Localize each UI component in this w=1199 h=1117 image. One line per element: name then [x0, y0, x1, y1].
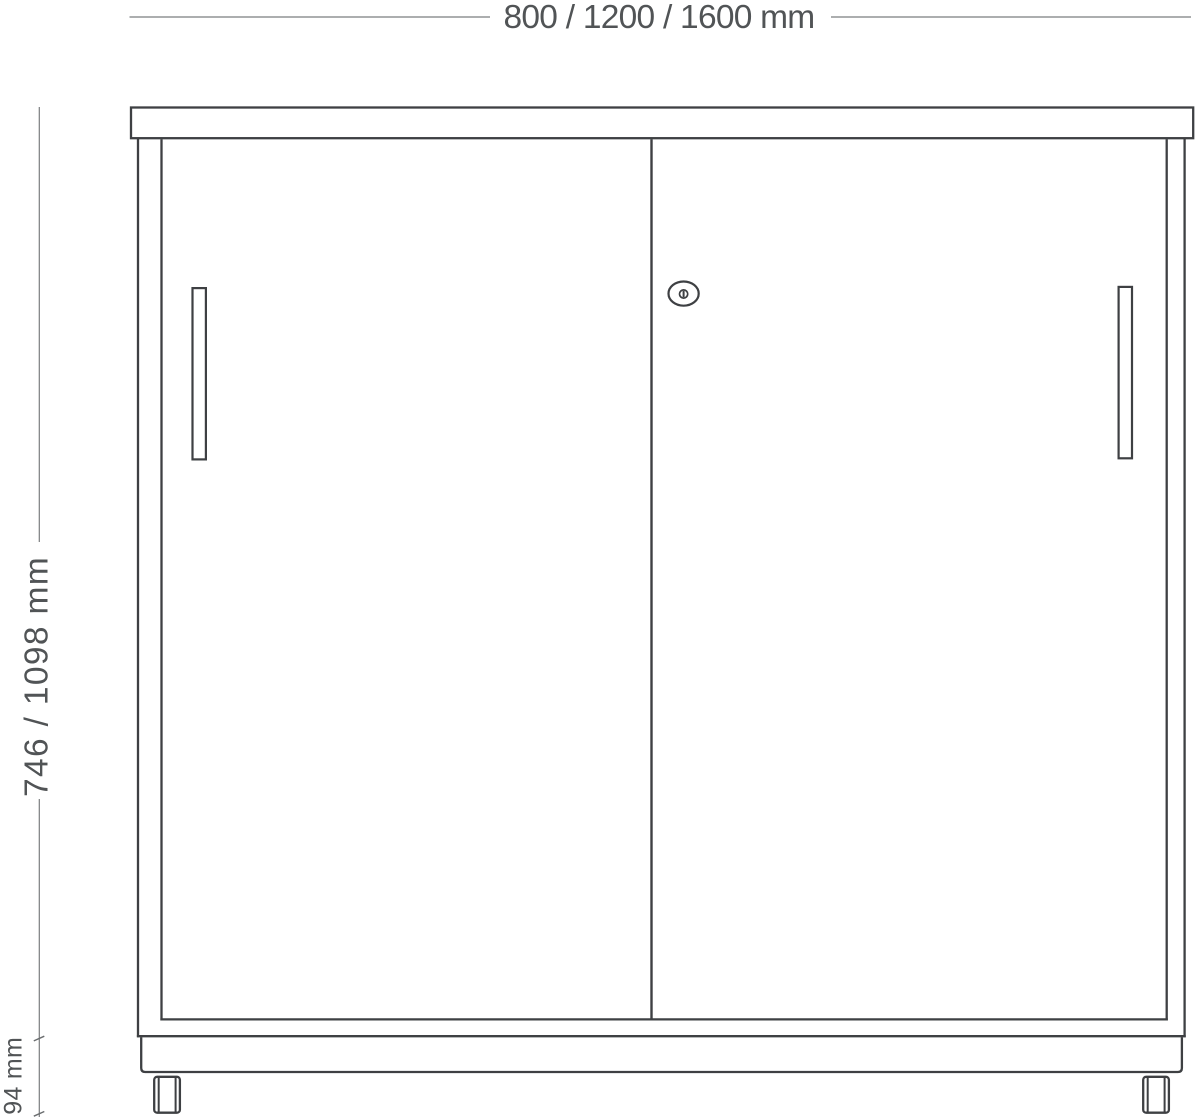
svg-text:800 / 1200 / 1600 mm: 800 / 1200 / 1600 mm	[504, 0, 815, 36]
svg-text:94 mm: 94 mm	[0, 1037, 28, 1115]
svg-text:746 / 1098 mm: 746 / 1098 mm	[19, 556, 56, 797]
